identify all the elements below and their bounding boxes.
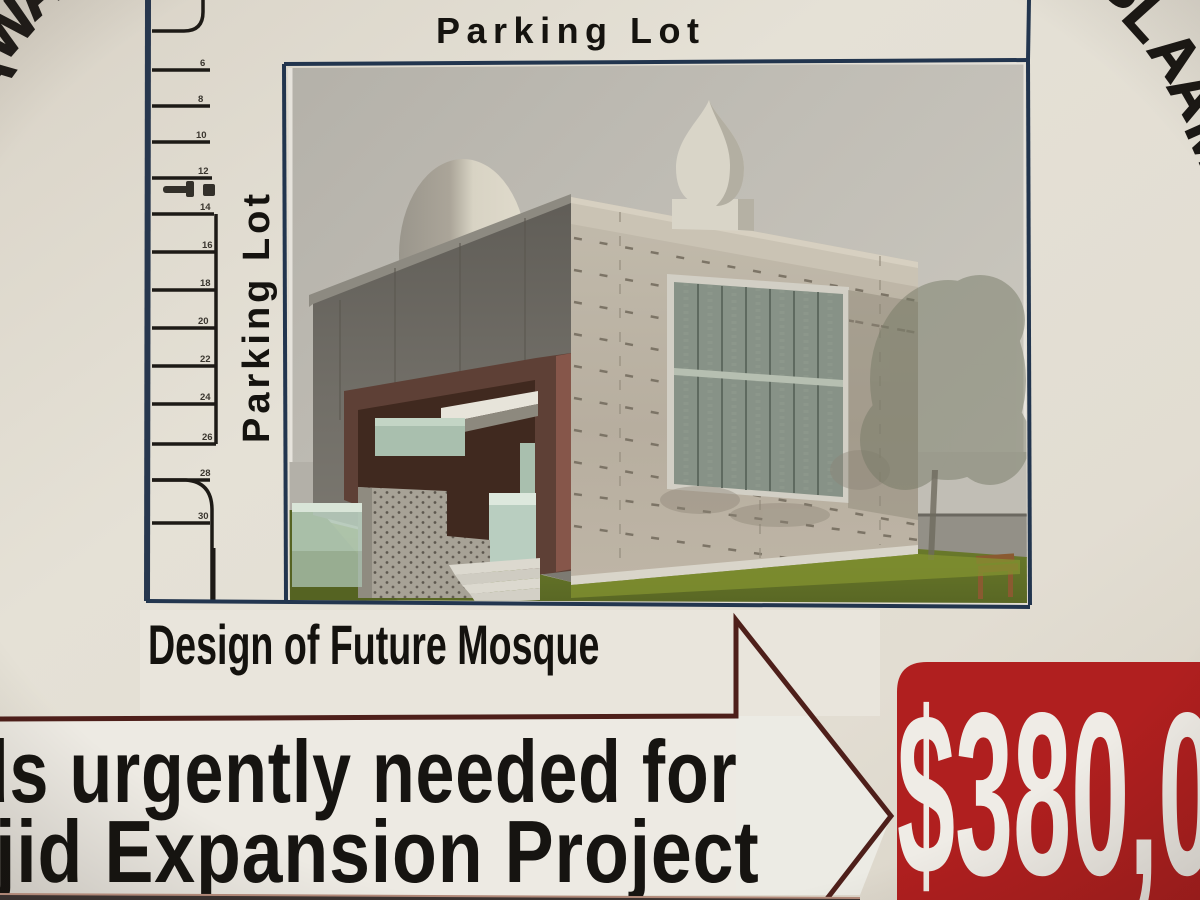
svg-text:6: 6	[200, 58, 205, 69]
svg-text:12: 12	[198, 166, 209, 177]
svg-text:20: 20	[198, 316, 209, 327]
svg-text:22: 22	[200, 354, 211, 365]
svg-text:8: 8	[198, 94, 203, 105]
svg-text:Parking Lot: Parking Lot	[236, 190, 278, 443]
svg-text:28: 28	[200, 468, 211, 479]
svg-text:26: 26	[202, 432, 213, 443]
svg-text:$380,0: $380,0	[897, 665, 1200, 900]
svg-text:jid Expansion Project: jid Expansion Project	[0, 804, 760, 900]
svg-text:18: 18	[200, 278, 211, 289]
svg-text:10: 10	[196, 130, 207, 141]
svg-text:24: 24	[200, 392, 211, 403]
svg-text:16: 16	[202, 240, 213, 251]
svg-text:30: 30	[198, 511, 209, 522]
svg-text:Design of Future Mosque: Design of Future Mosque	[148, 615, 599, 677]
svg-text:Parking Lot: Parking Lot	[436, 10, 706, 51]
svg-text:14: 14	[200, 202, 211, 213]
